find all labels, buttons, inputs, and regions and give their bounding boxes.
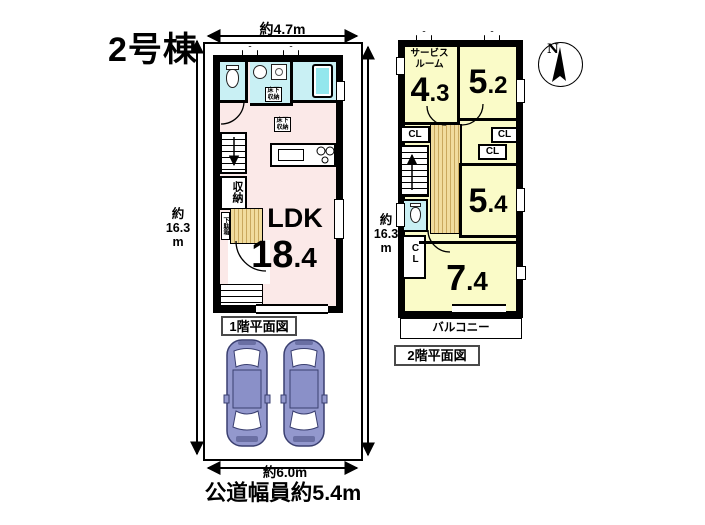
dim-left-l2: 16.3 xyxy=(162,221,194,235)
floor2-service-room: サービス ルーム 4.3 xyxy=(405,47,460,125)
service-room-l1: サービス xyxy=(405,49,454,60)
room54-size-dec: .4 xyxy=(487,191,507,218)
ldk-name: LDK xyxy=(253,205,337,232)
floorplan-canvas: 2号棟 約4.7m 約 16.3 m 約 16.3 m 約6.0m 公道幅員約5… xyxy=(0,0,705,525)
closet-cl-topleft: CL xyxy=(400,126,430,143)
road-width-label: 公道幅員約5.4m xyxy=(193,476,373,507)
underfloor1-l1: 床下 xyxy=(266,88,281,95)
room74-size: 7.4 xyxy=(433,260,501,296)
window-icon xyxy=(516,79,525,103)
window-icon xyxy=(416,31,432,41)
service-room-label: サービス ルーム xyxy=(405,49,454,70)
floor1-caption: 1階平面図 xyxy=(221,316,297,336)
window-icon xyxy=(516,266,526,280)
underfloor1-l2: 収納 xyxy=(266,95,281,102)
floor1-toilet-room xyxy=(220,62,248,103)
floor2-room-54: 5.4 xyxy=(459,163,516,238)
kitchen-counter xyxy=(270,143,336,167)
window-icon xyxy=(256,304,328,314)
room52-size: 5.2 xyxy=(462,65,514,99)
window-icon xyxy=(334,199,344,239)
floor2-room-52: 5.2 xyxy=(460,47,516,121)
underfloor-storage-label-2: 床下 収納 xyxy=(274,117,291,132)
room54-size-int: 5 xyxy=(469,182,488,220)
room52-size-dec: .2 xyxy=(487,72,507,99)
room54-size: 5.4 xyxy=(462,184,514,218)
service-room-size: 4.3 xyxy=(405,73,455,107)
window-icon xyxy=(396,203,405,227)
room74-size-dec: .4 xyxy=(466,266,488,296)
floor1-bathroom xyxy=(293,62,336,103)
washing-machine-icon xyxy=(271,64,287,80)
floor1-storage-room: 収納 xyxy=(220,176,247,210)
ldk-size-int: 18 xyxy=(251,234,293,276)
compass-north-label: N xyxy=(547,42,559,57)
underfloor-storage-label-1: 床下 収納 xyxy=(265,87,282,102)
toilet-tank-icon xyxy=(226,65,239,70)
closet-cl-right-2: CL xyxy=(478,144,507,160)
underfloor2-l2: 収納 xyxy=(275,125,290,132)
window-icon xyxy=(452,304,506,314)
room74-size-int: 7 xyxy=(446,257,466,298)
window-icon xyxy=(484,31,500,41)
window-icon xyxy=(336,81,345,101)
floor1-stairs xyxy=(220,132,247,174)
ldk-size: 18.4 xyxy=(236,236,332,274)
floor2-toilet xyxy=(402,199,428,232)
dim-top-label: 約4.7m xyxy=(240,19,325,39)
storage-label: 収納 xyxy=(229,181,245,203)
room52-size-int: 5 xyxy=(469,63,488,101)
bathtub-icon xyxy=(312,64,333,98)
floor2-caption: 2階平面図 xyxy=(394,345,480,366)
toilet-tank-icon xyxy=(410,203,421,207)
toilet-icon xyxy=(410,207,421,223)
entrance-steps xyxy=(220,284,263,306)
closet-cl-right-1: CL xyxy=(491,127,518,143)
balcony: バルコニー xyxy=(400,318,522,339)
compass-icon xyxy=(538,42,583,87)
window-icon xyxy=(396,57,405,75)
floor2-room-74: 7.4 xyxy=(419,241,516,311)
floor1-outline: 床下 収納 収納 下駄箱 床下 収納 LDK 18.4 xyxy=(213,55,343,313)
kitchen-sink-icon xyxy=(278,149,304,161)
toilet-icon xyxy=(226,69,239,88)
floor2-outline: サービス ルーム 4.3 5.2 CL CL CL CL xyxy=(398,40,523,318)
washbasin-icon xyxy=(253,65,267,79)
ldk-size-dec: .4 xyxy=(293,242,316,273)
building-title: 2号棟 xyxy=(108,22,198,71)
underfloor2-l1: 床下 xyxy=(275,118,290,125)
service-room-l2: ルーム xyxy=(405,60,454,71)
dim-left-l1: 約 xyxy=(162,207,194,221)
window-icon xyxy=(516,188,525,212)
service-size-dec: .3 xyxy=(429,80,449,107)
floor2-stairs xyxy=(400,145,429,197)
shoe-cabinet-label: 下駄箱 xyxy=(221,212,230,240)
floor1-washroom: 床下 収納 xyxy=(250,62,293,106)
floor2-hall xyxy=(430,124,462,234)
service-size-int: 4 xyxy=(411,71,430,109)
dim-left-l3: m xyxy=(162,235,194,249)
washing-machine-drum-icon xyxy=(275,68,283,76)
dim-left-label: 約 16.3 m xyxy=(162,207,194,249)
